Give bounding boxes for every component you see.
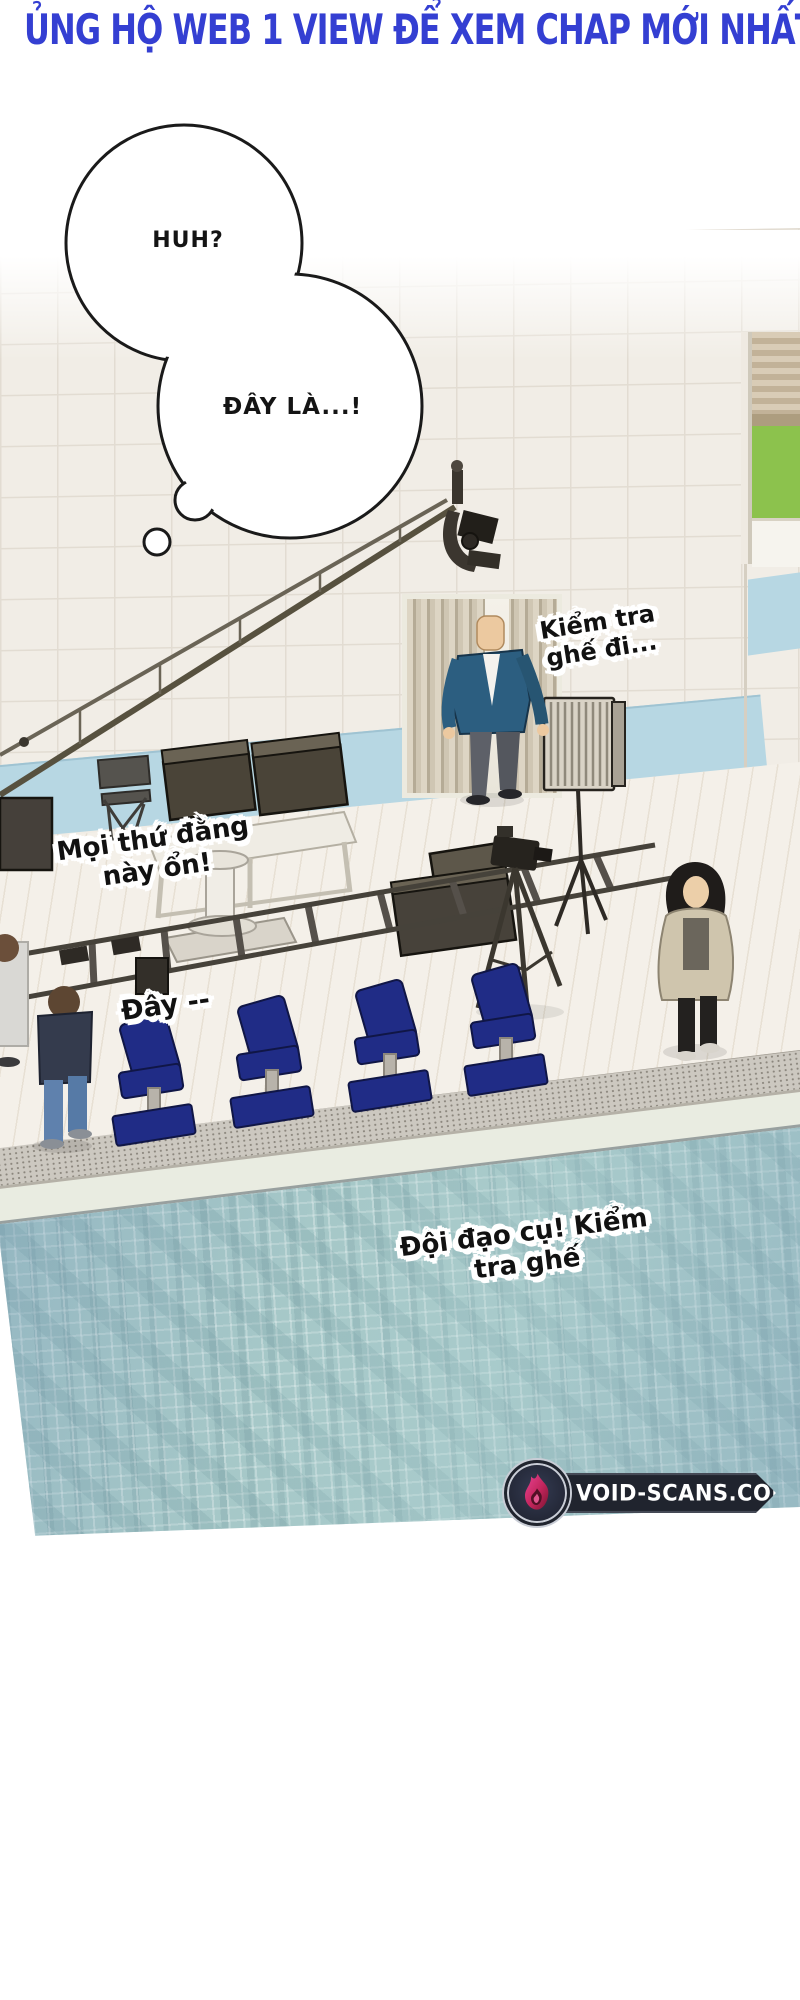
bubble-text-day-la: ĐÂY LÀ...! <box>190 394 395 420</box>
watermark-logo <box>504 1460 570 1526</box>
watermark-site-label: VOID-SCANS.COM <box>544 1473 776 1513</box>
comic-page: ỦNG HỘ WEB 1 VIEW ĐỂ XEM CHAP MỚI NHẤT <box>0 0 800 2000</box>
bubble-text-huh: HUH? <box>108 228 268 253</box>
thought-bubble <box>40 118 470 588</box>
flame-icon <box>517 1471 557 1515</box>
crew-members <box>0 934 92 1153</box>
woman-in-coat <box>659 862 734 1061</box>
thought-dot <box>144 529 170 555</box>
